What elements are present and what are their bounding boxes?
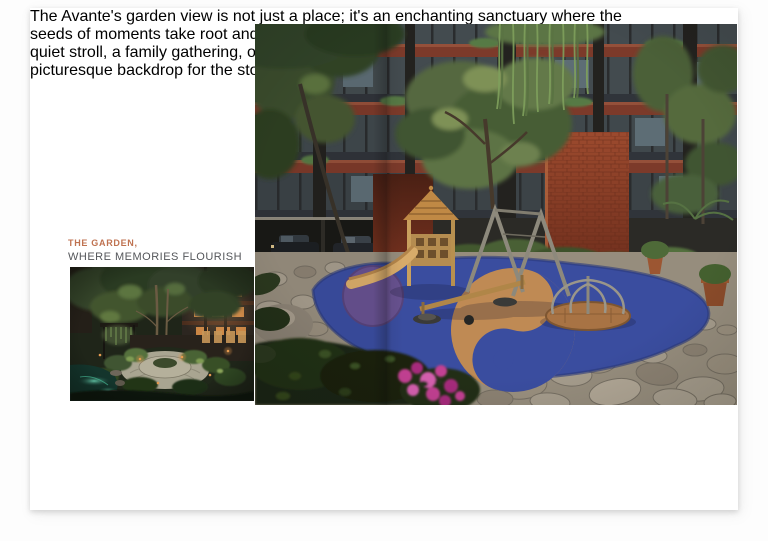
brochure-canvas: THE GARDEN, WHERE MEMORIES FLOURISH bbox=[0, 0, 768, 541]
garden-thumbnail-image bbox=[70, 267, 254, 401]
garden-subheading: WHERE MEMORIES FLOURISH bbox=[68, 251, 242, 263]
garden-heading: THE GARDEN, bbox=[68, 238, 138, 248]
playground-illustration bbox=[255, 24, 737, 405]
night-garden-illustration bbox=[70, 267, 254, 401]
brochure-page: THE GARDEN, WHERE MEMORIES FLOURISH bbox=[30, 8, 738, 510]
garden-spread-image bbox=[255, 24, 737, 405]
